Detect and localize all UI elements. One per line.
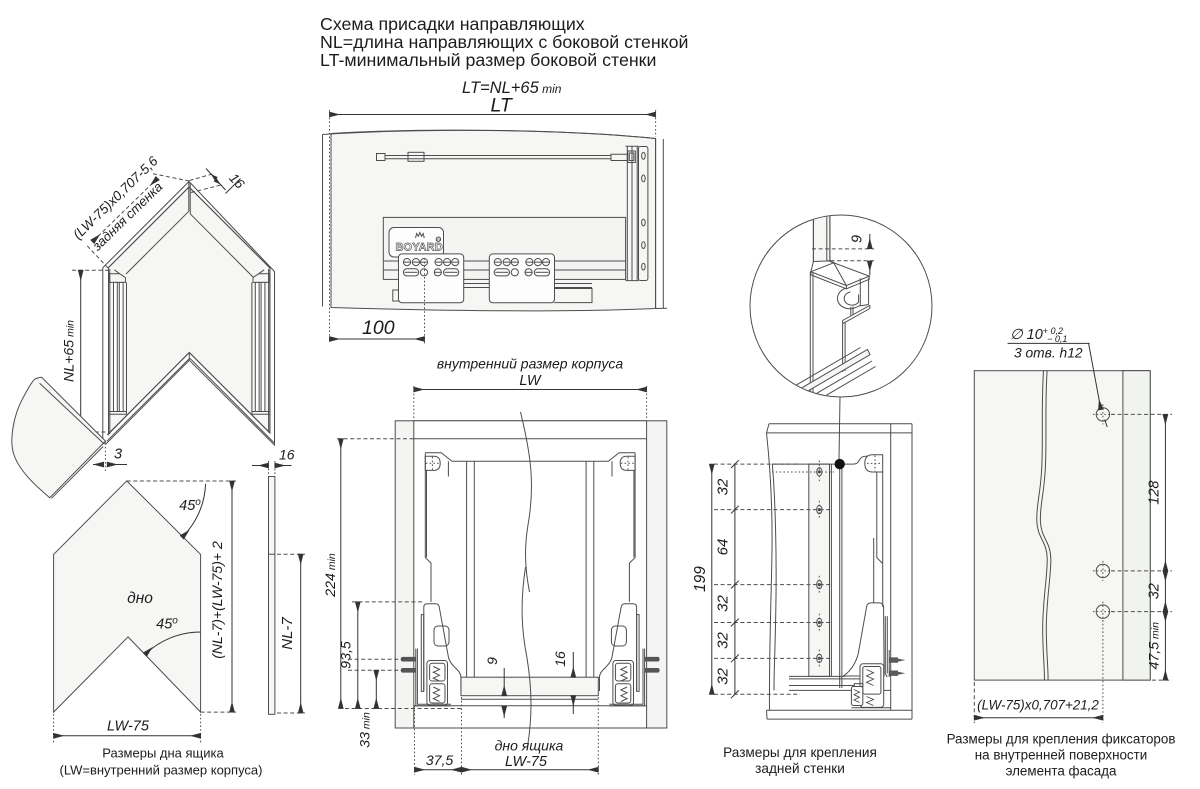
svg-text:47,5 min: 47,5 min [1147,622,1163,670]
svg-text:NL-7: NL-7 [279,617,296,650]
svg-text:Схема присадки направляющих: Схема присадки направляющих [320,14,585,34]
svg-text:16: 16 [279,447,295,463]
svg-text:93,5: 93,5 [339,641,355,669]
svg-text:9: 9 [850,235,866,243]
svg-text:LT-минимальный размер боковой: LT-минимальный размер боковой стенки [320,50,656,70]
svg-text:NL+65 min: NL+65 min [62,320,78,382]
svg-text:128: 128 [1147,480,1163,504]
svg-text:(NL-7)+(LW-75)+ 2: (NL-7)+(LW-75)+ 2 [209,541,225,659]
svg-text:Размеры дна ящика: Размеры дна ящика [102,746,224,761]
svg-text:64: 64 [715,539,732,556]
svg-text:16: 16 [226,170,248,192]
svg-text:задней стенки: задней стенки [755,761,845,776]
svg-text:33 min: 33 min [358,712,374,748]
svg-text:∅ 10+ 0,2− 0,1: ∅ 10+ 0,2− 0,1 [1010,326,1067,344]
svg-text:32: 32 [715,595,732,612]
svg-text:BOYARD: BOYARD [396,242,443,254]
svg-text:LW-75: LW-75 [107,719,150,735]
svg-text:LW: LW [519,373,542,389]
svg-text:32: 32 [715,478,732,495]
svg-text:224 min: 224 min [323,553,339,598]
svg-text:дно: дно [127,590,153,607]
svg-text:199: 199 [692,566,709,592]
svg-text:100: 100 [362,317,395,339]
svg-text:на внутренней поверхности: на внутренней поверхности [975,748,1147,763]
svg-text:9: 9 [484,657,500,665]
svg-text:(LW-75)x0,707+21,2: (LW-75)x0,707+21,2 [977,698,1099,713]
svg-text:LT: LT [491,95,514,117]
svg-text:(LW=внутренний размер корпуса): (LW=внутренний размер корпуса) [60,763,263,778]
svg-text:внутренний размер корпуса: внутренний размер корпуса [437,356,624,372]
svg-text:Размеры для крепления: Размеры для крепления [723,745,877,760]
svg-text:45o: 45o [179,497,201,514]
svg-text:37,5: 37,5 [426,753,454,769]
svg-text:32: 32 [715,632,732,649]
svg-text:3: 3 [114,447,122,463]
svg-text:3 отв. h12: 3 отв. h12 [1014,346,1083,361]
svg-text:32: 32 [1147,583,1163,599]
svg-text:LW-75: LW-75 [505,754,548,770]
svg-text:16: 16 [552,651,568,667]
svg-text:R: R [437,238,440,243]
svg-text:LT=NL+65 min: LT=NL+65 min [462,79,562,97]
svg-text:NL=длина направляющих с боково: NL=длина направляющих с боковой стенкой [320,32,688,52]
svg-text:Размеры для крепления фиксатор: Размеры для крепления фиксаторов [947,732,1176,747]
svg-text:дно ящика: дно ящика [495,738,564,754]
svg-text:32: 32 [715,667,732,684]
svg-text:элемента фасада: элемента фасада [1006,764,1117,779]
